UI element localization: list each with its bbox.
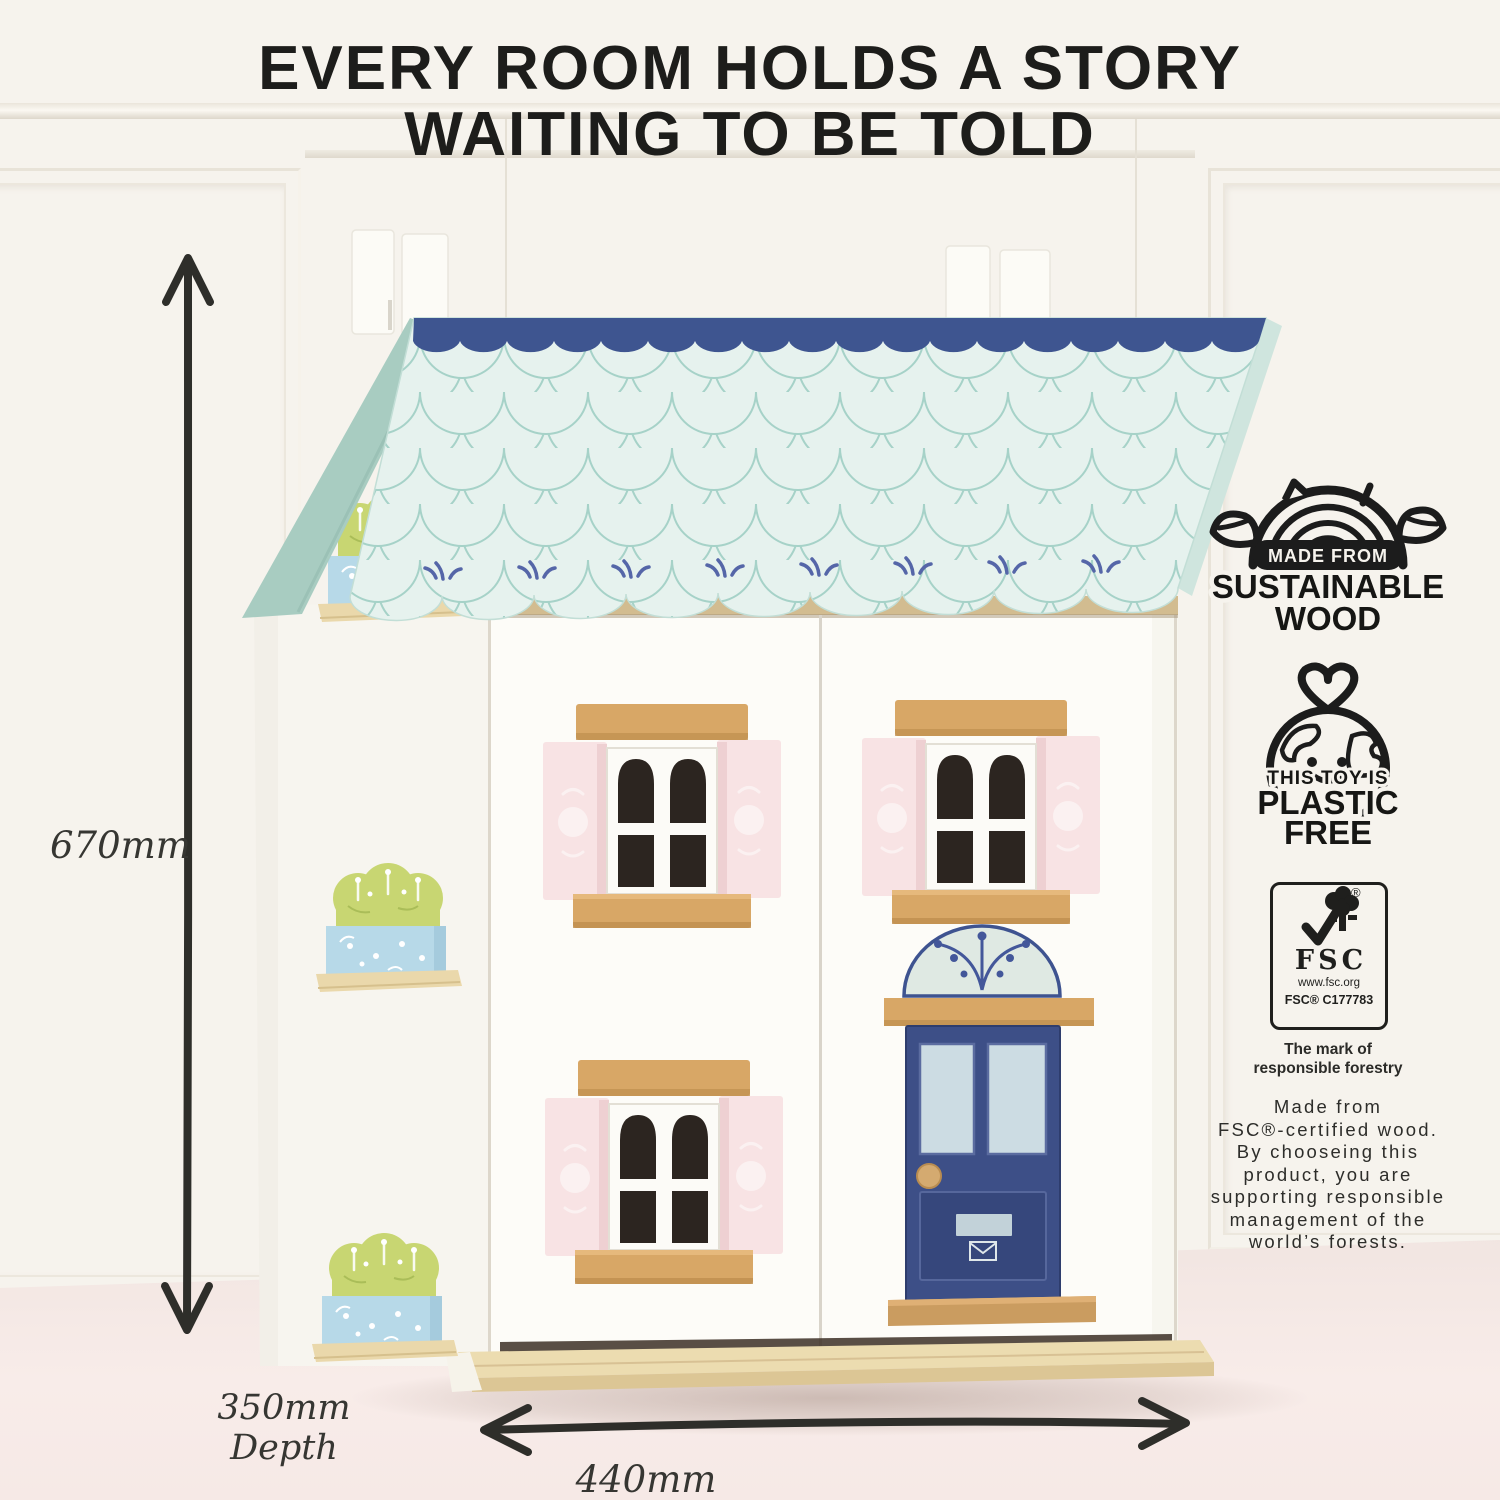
- window-lower-left: [545, 1060, 783, 1284]
- door-knob: [917, 1164, 941, 1188]
- sustainable-wood-badge: MADE FROM SUSTAINABLE WOOD: [1197, 470, 1459, 642]
- fsc-description: Made from FSC®-certified wood. By choose…: [1166, 1096, 1490, 1254]
- description-line: management of the: [1166, 1209, 1490, 1232]
- headline: EVERY ROOM HOLDS A STORY WAITING TO BE T…: [0, 36, 1500, 168]
- wood-label: WOOD: [1275, 600, 1381, 637]
- description-line: FSC®-certified wood.: [1166, 1119, 1490, 1142]
- height-dimension-label: 670mm: [50, 824, 180, 867]
- product-infographic: EVERY ROOM HOLDS A STORY WAITING TO BE T…: [0, 0, 1500, 1500]
- front-seam: [819, 615, 822, 1355]
- fsc-tree-checkmark-icon: ®: [1294, 885, 1364, 947]
- free-label: FREE: [1284, 814, 1372, 850]
- fsc-certification-box: ® FSC www.fsc.org FSC® C177783: [1270, 882, 1388, 1030]
- headline-line2: WAITING TO BE TOLD: [0, 102, 1500, 168]
- window-upper-right: [862, 700, 1100, 924]
- made-from-label: MADE FROM: [1268, 546, 1388, 566]
- depth-dimension-label: 350mm Depth: [196, 1388, 372, 1468]
- description-line: supporting responsible: [1166, 1186, 1490, 1209]
- fsc-tagline-line1: The mark of: [1233, 1040, 1423, 1059]
- heart-icon: [1302, 666, 1355, 710]
- window-upper-left: [543, 704, 781, 928]
- depth-value: 350mm: [196, 1388, 372, 1428]
- width-dimension-label: 440mm: [556, 1458, 736, 1500]
- description-line: world’s forests.: [1166, 1231, 1490, 1254]
- height-arrow: [165, 258, 210, 1330]
- fsc-acronym: FSC: [1295, 947, 1367, 974]
- description-line: Made from: [1166, 1096, 1490, 1119]
- fsc-tagline: The mark of responsible forestry: [1233, 1040, 1423, 1078]
- plastic-free-badge: THIS TOY IS PLASTIC FREE: [1208, 658, 1448, 850]
- description-line: product, you are: [1166, 1164, 1490, 1187]
- fsc-url: www.fsc.org: [1298, 977, 1360, 989]
- headline-line1: EVERY ROOM HOLDS A STORY: [0, 36, 1500, 102]
- roof: [350, 318, 1282, 621]
- depth-word: Depth: [196, 1428, 372, 1468]
- fsc-tagline-line2: responsible forestry: [1233, 1059, 1423, 1078]
- front-door: [906, 1026, 1060, 1302]
- letter-plate: [956, 1214, 1012, 1236]
- fsc-license-code: FSC® C177783: [1285, 993, 1373, 1007]
- description-line: By chooseing this: [1166, 1141, 1490, 1164]
